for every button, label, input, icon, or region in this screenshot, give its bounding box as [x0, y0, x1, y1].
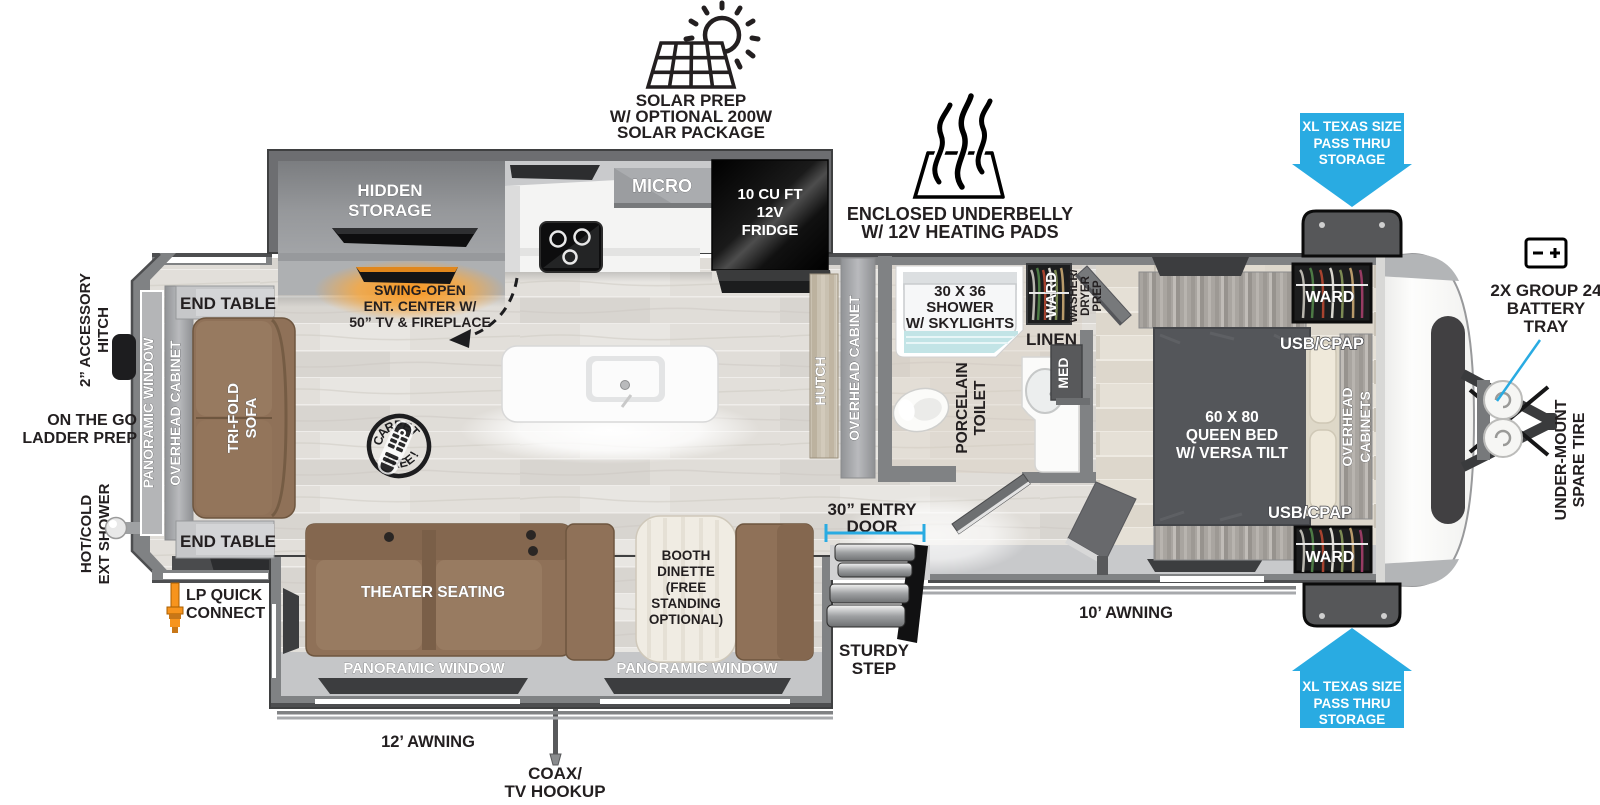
svg-text:CABINETS: CABINETS — [1357, 391, 1373, 463]
svg-text:STURDY: STURDY — [839, 641, 910, 660]
svg-text:PORCELAIN: PORCELAIN — [954, 362, 971, 453]
svg-text:OVERHEAD CABINET: OVERHEAD CABINET — [167, 340, 183, 486]
svg-text:CONNECT: CONNECT — [186, 605, 265, 622]
svg-text:OPTIONAL): OPTIONAL) — [649, 612, 723, 627]
svg-text:SHOWER: SHOWER — [926, 299, 994, 316]
svg-text:30 X 36: 30 X 36 — [934, 283, 986, 300]
svg-text:PANORAMIC WINDOW: PANORAMIC WINDOW — [140, 337, 156, 488]
svg-text:(FREE: (FREE — [666, 580, 707, 595]
svg-text:W/ 12V HEATING PADS: W/ 12V HEATING PADS — [861, 222, 1058, 242]
svg-text:USB/CPAP: USB/CPAP — [1268, 504, 1352, 522]
svg-text:TV HOOKUP: TV HOOKUP — [504, 782, 605, 801]
svg-text:STORAGE: STORAGE — [1319, 152, 1386, 167]
svg-text:2” ACCESSORY: 2” ACCESSORY — [77, 273, 94, 387]
svg-text:HUTCH: HUTCH — [812, 357, 828, 406]
svg-text:END TABLE: END TABLE — [180, 532, 276, 551]
svg-text:STEP: STEP — [852, 659, 896, 678]
svg-text:WARD: WARD — [1306, 549, 1355, 566]
svg-text:WARD: WARD — [1306, 289, 1355, 306]
svg-text:ON THE GO: ON THE GO — [47, 412, 137, 429]
svg-text:USB/CPAP: USB/CPAP — [1280, 335, 1364, 353]
svg-text:60 X 80: 60 X 80 — [1205, 409, 1258, 426]
svg-text:OVERHEAD CABINET: OVERHEAD CABINET — [846, 295, 862, 441]
svg-text:W/ VERSA TILT: W/ VERSA TILT — [1176, 445, 1288, 462]
svg-text:THEATER SEATING: THEATER SEATING — [361, 584, 505, 601]
svg-text:XL TEXAS SIZE: XL TEXAS SIZE — [1302, 679, 1402, 694]
svg-text:TOILET: TOILET — [972, 380, 989, 435]
svg-text:TRI-FOLD: TRI-FOLD — [225, 383, 242, 453]
svg-text:ENT. CENTER W/: ENT. CENTER W/ — [364, 298, 477, 314]
svg-text:END TABLE: END TABLE — [180, 294, 276, 313]
svg-text:PREP: PREP — [1092, 280, 1104, 312]
svg-text:DINETTE: DINETTE — [657, 564, 715, 579]
svg-text:ENCLOSED UNDERBELLY: ENCLOSED UNDERBELLY — [847, 204, 1073, 224]
svg-text:PASS THRU: PASS THRU — [1313, 136, 1390, 151]
svg-text:TRAY: TRAY — [1524, 317, 1569, 336]
svg-text:MED: MED — [1055, 357, 1071, 388]
svg-text:12’ AWNING: 12’ AWNING — [381, 733, 475, 751]
svg-text:STORAGE: STORAGE — [1319, 712, 1386, 727]
svg-text:BOOTH: BOOTH — [662, 548, 711, 563]
svg-text:WASHER/: WASHER/ — [1068, 268, 1080, 322]
svg-text:DRYER: DRYER — [1080, 275, 1092, 316]
svg-text:STANDING: STANDING — [651, 596, 721, 611]
svg-text:HITCH: HITCH — [95, 307, 112, 353]
svg-text:SWING-OPEN: SWING-OPEN — [374, 282, 466, 298]
svg-text:SOFA: SOFA — [243, 397, 260, 438]
svg-text:W/ SKYLIGHTS: W/ SKYLIGHTS — [906, 315, 1014, 332]
svg-text:SOLAR PACKAGE: SOLAR PACKAGE — [617, 123, 765, 142]
svg-text:PANORAMIC WINDOW: PANORAMIC WINDOW — [343, 660, 505, 677]
svg-text:WARD: WARD — [1043, 272, 1060, 318]
svg-text:2X GROUP 24: 2X GROUP 24 — [1490, 281, 1600, 300]
svg-text:LADDER PREP: LADDER PREP — [22, 430, 137, 447]
svg-text:BATTERY: BATTERY — [1507, 299, 1586, 318]
svg-text:PASS THRU: PASS THRU — [1313, 696, 1390, 711]
svg-text:MICRO: MICRO — [632, 176, 692, 196]
svg-text:10 CU FT: 10 CU FT — [737, 186, 802, 203]
svg-text:10’ AWNING: 10’ AWNING — [1079, 604, 1173, 622]
svg-text:FRIDGE: FRIDGE — [742, 222, 799, 239]
svg-text:OVERHEAD: OVERHEAD — [1339, 387, 1355, 466]
svg-text:12V: 12V — [757, 204, 784, 221]
svg-text:50” TV & FIREPLACE: 50” TV & FIREPLACE — [349, 314, 491, 330]
svg-text:STORAGE: STORAGE — [348, 201, 432, 220]
svg-text:QUEEN BED: QUEEN BED — [1186, 427, 1278, 444]
svg-text:LP QUICK: LP QUICK — [186, 587, 263, 604]
svg-text:HIDDEN: HIDDEN — [357, 181, 422, 200]
svg-text:COAX/: COAX/ — [528, 764, 582, 783]
svg-text:HOT/COLD: HOT/COLD — [78, 495, 95, 573]
svg-text:SPARE TIRE: SPARE TIRE — [1571, 412, 1588, 507]
svg-text:XL TEXAS SIZE: XL TEXAS SIZE — [1302, 119, 1402, 134]
svg-text:UNDER-MOUNT: UNDER-MOUNT — [1553, 399, 1570, 520]
